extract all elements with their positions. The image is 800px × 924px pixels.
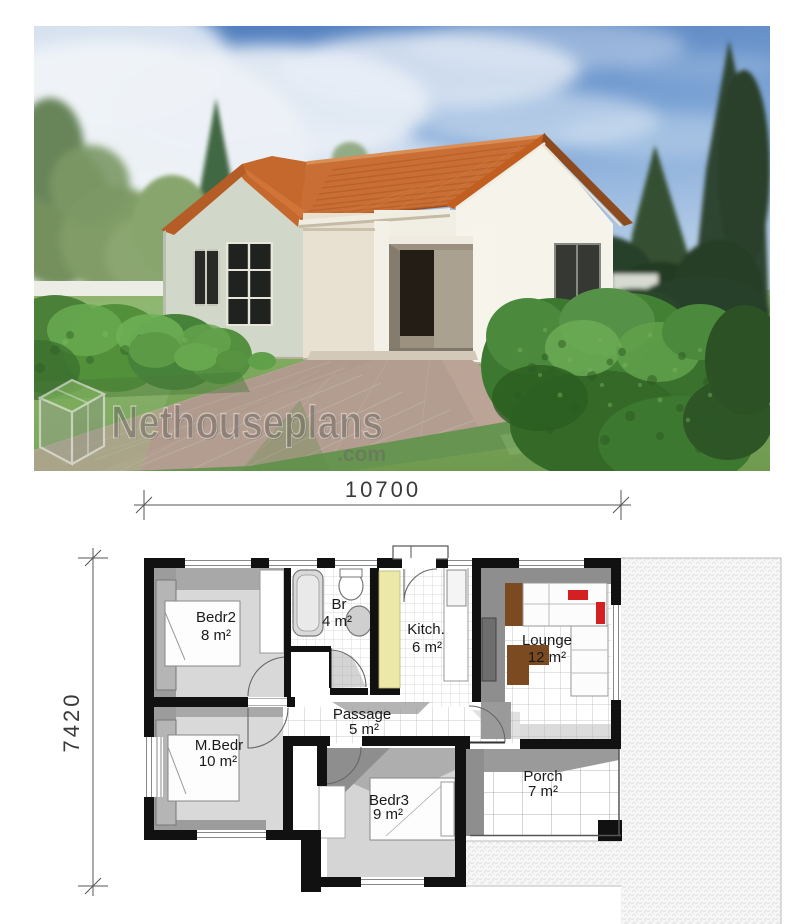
svg-text:7420: 7420 xyxy=(59,692,84,753)
svg-text:8 m²: 8 m² xyxy=(201,627,231,644)
svg-text:.com: .com xyxy=(337,443,386,466)
svg-text:12 m²: 12 m² xyxy=(528,649,566,666)
svg-text:6 m²: 6 m² xyxy=(412,639,442,656)
svg-text:4 m²: 4 m² xyxy=(322,613,352,630)
svg-text:Bedr2: Bedr2 xyxy=(196,609,236,626)
svg-text:7 m²: 7 m² xyxy=(528,783,558,800)
svg-text:Lounge: Lounge xyxy=(522,632,572,649)
svg-text:9 m²: 9 m² xyxy=(373,806,403,823)
svg-text:10700: 10700 xyxy=(345,477,421,502)
svg-text:5 m²: 5 m² xyxy=(349,721,379,738)
svg-text:10 m²: 10 m² xyxy=(199,753,237,770)
svg-text:Nethouseplans: Nethouseplans xyxy=(111,396,383,448)
svg-text:M.Bedr: M.Bedr xyxy=(195,737,243,754)
svg-text:Br: Br xyxy=(332,596,347,613)
svg-text:Kitch.: Kitch. xyxy=(407,621,445,638)
